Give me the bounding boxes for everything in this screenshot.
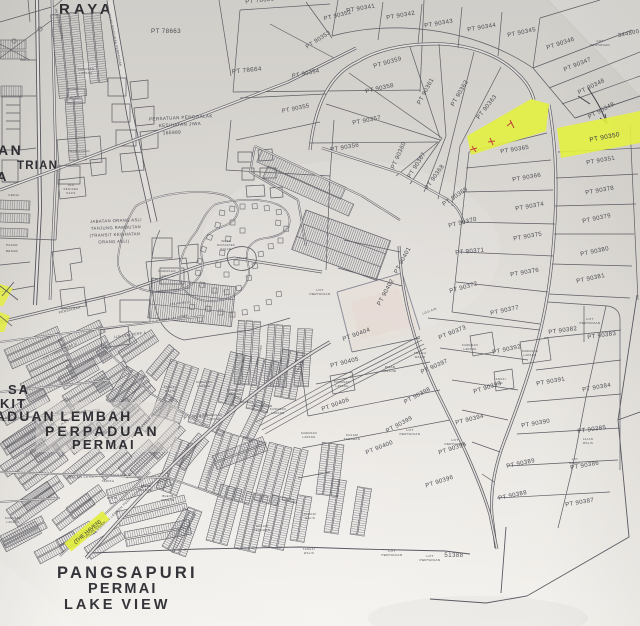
svg-text:LAPANG: LAPANG (197, 384, 210, 388)
svg-text:BAHGU: BAHGU (569, 461, 581, 465)
svg-text:KAWASAN: KAWASAN (522, 349, 538, 353)
svg-text:WALIS: WALIS (583, 441, 593, 445)
svg-text:51388: 51388 (444, 553, 463, 559)
svg-text:MASJID: MASJID (162, 498, 175, 502)
svg-text:NALIS: NALIS (305, 516, 315, 520)
svg-text:INDEX: INDEX (221, 240, 231, 243)
svg-text:TADAHAN: TADAHAN (254, 528, 270, 532)
svg-text:PASAR: PASAR (6, 243, 18, 247)
svg-text:PERTANIAN: PERTANIAN (419, 558, 440, 562)
svg-text:KAWASAN: KAWASAN (5, 516, 21, 520)
svg-text:KAWASAN: KAWASAN (206, 413, 222, 417)
svg-text:WALIS: WALIS (165, 389, 175, 393)
svg-text:KAWASAN: KAWASAN (301, 431, 317, 435)
svg-text:AN: AN (0, 142, 23, 158)
svg-text:PERTANIAN: PERTANIAN (444, 442, 465, 446)
svg-text:TANDAS: TANDAS (240, 400, 253, 404)
svg-text:NAJIS: NAJIS (66, 191, 75, 195)
svg-text:SA: SA (8, 382, 30, 397)
svg-text:TANGKI: TANGKI (164, 385, 176, 389)
svg-text:PANGSAPURI: PANGSAPURI (57, 564, 198, 582)
svg-text:LAPANG: LAPANG (6, 520, 19, 524)
svg-text:MASJID: MASJID (384, 369, 397, 373)
svg-text:KAWASAN: KAWASAN (270, 407, 286, 411)
svg-text:KAWASAN: KAWASAN (227, 388, 243, 392)
svg-text:LAPANG: LAPANG (463, 347, 476, 351)
svg-text:WALIS: WALIS (304, 551, 314, 555)
svg-text:KAWASAN: KAWASAN (158, 269, 176, 273)
svg-text:LAPANG: LAPANG (228, 392, 241, 396)
svg-text:PERTANIAN: PERTANIAN (590, 43, 610, 47)
svg-text:A: A (0, 169, 7, 184)
svg-text:TADIKA: TADIKA (102, 479, 115, 483)
svg-text:PERMAI: PERMAI (88, 581, 158, 597)
svg-text:WALIS: WALIS (415, 355, 426, 359)
svg-text:D.O.B: D.O.B (107, 496, 117, 500)
svg-text:AIR: AIR (497, 381, 503, 385)
svg-text:ULU: ULU (68, 183, 74, 187)
svg-text:PENJARA: PENJARA (64, 187, 79, 191)
svg-text:LAPANG: LAPANG (79, 71, 93, 75)
svg-text:PT 78663: PT 78663 (151, 28, 181, 35)
svg-text:KAWASAN: KAWASAN (196, 380, 212, 384)
svg-text:TANGKI: TANGKI (303, 547, 315, 551)
svg-text:LAKE VIEW: LAKE VIEW (64, 597, 170, 613)
svg-text:BESAR: BESAR (6, 249, 19, 253)
svg-text:RICHGATES: RICHGATES (217, 244, 235, 247)
svg-text:PERTANIAN: PERTANIAN (381, 553, 402, 557)
svg-text:PERTANIAN: PERTANIAN (399, 432, 420, 436)
svg-text:KOLAM: KOLAM (237, 257, 248, 260)
svg-text:165989: 165989 (163, 130, 182, 137)
svg-text:TADAHAN: TADAHAN (344, 437, 360, 441)
svg-text:KAWASAN: KAWASAN (462, 343, 478, 347)
svg-text:TANGKI: TANGKI (494, 377, 506, 381)
svg-text:LOT: LOT (572, 457, 578, 461)
svg-text:LAPANG: LAPANG (271, 411, 284, 415)
svg-text:KOLAM: KOLAM (221, 248, 232, 251)
svg-text:LAPANG: LAPANG (302, 435, 315, 439)
svg-text:KEDAI: KEDAI (8, 193, 19, 197)
svg-text:PERNIAGAAN: PERNIAGAAN (68, 149, 90, 153)
svg-text:MASJID: MASJID (140, 488, 153, 492)
svg-text:PERTANIAN: PERTANIAN (579, 321, 600, 325)
svg-text:LAPANG: LAPANG (207, 417, 220, 421)
svg-text:PERTANIAN: PERTANIAN (309, 292, 330, 296)
svg-text:LAPANG: LAPANG (523, 353, 536, 357)
svg-text:PERMAI: PERMAI (72, 437, 136, 452)
svg-text:JALAN: JALAN (583, 437, 593, 441)
